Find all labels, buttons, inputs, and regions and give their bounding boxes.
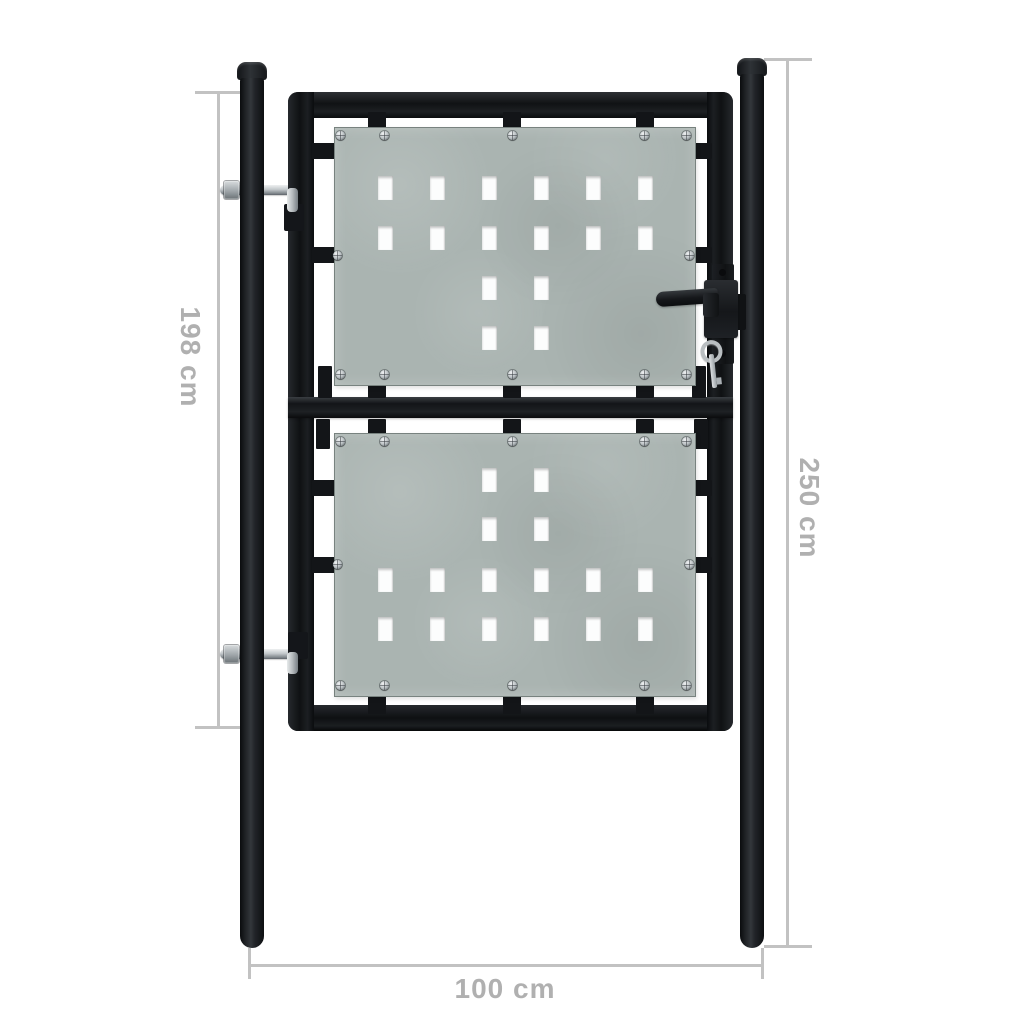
panel-hole	[482, 617, 497, 641]
panel-screw	[508, 681, 517, 690]
panel-hole	[378, 176, 393, 200]
panel-hole	[534, 176, 549, 200]
panel-hole	[638, 617, 653, 641]
panel-screw	[336, 681, 345, 690]
panel-screw	[685, 251, 694, 260]
product-dimension-diagram: 198 cm 250 cm 100 cm	[0, 0, 1024, 1024]
panel-hole	[378, 568, 393, 592]
panel-hole	[586, 176, 601, 200]
panel-hole	[482, 176, 497, 200]
panel-hole	[534, 226, 549, 250]
gate-bottom-panel	[334, 433, 696, 697]
panel-hole	[534, 326, 549, 350]
dim-tick-gate-height-bottom	[195, 726, 240, 729]
hinge-top-nut	[224, 181, 239, 199]
panel-hole	[586, 226, 601, 250]
panel-screw	[682, 437, 691, 446]
dim-label-gate-height: 198 cm	[174, 307, 206, 408]
mounting-clip	[312, 143, 336, 159]
panel-hole	[430, 226, 445, 250]
dim-tick-gate-height-top	[195, 91, 240, 94]
hinge-top-elbow	[287, 188, 298, 212]
hinge-bottom-elbow	[287, 652, 298, 674]
panel-screw	[682, 370, 691, 379]
panel-hole	[482, 276, 497, 300]
mounting-clip	[316, 419, 330, 449]
panel-hole	[638, 176, 653, 200]
panel-hole	[378, 617, 393, 641]
panel-screw	[682, 681, 691, 690]
panel-hole	[482, 226, 497, 250]
panel-hole	[534, 517, 549, 541]
mounting-clip	[318, 366, 332, 398]
gate-top-panel	[334, 127, 696, 386]
panel-hole	[430, 617, 445, 641]
hinge-bottom-nut	[224, 645, 239, 663]
panel-hole	[638, 568, 653, 592]
panel-screw	[508, 437, 517, 446]
panel-screw	[640, 370, 649, 379]
panel-screw	[336, 370, 345, 379]
dim-tick-total-height-top	[764, 58, 812, 61]
dim-tick-total-height-bottom	[764, 945, 812, 948]
dim-tick-width-left	[248, 948, 251, 979]
panel-screw	[333, 251, 342, 260]
key-tooth	[716, 377, 722, 384]
right-post	[740, 74, 764, 948]
dim-label-total-height: 250 cm	[793, 458, 825, 559]
middle-rail	[288, 397, 733, 418]
panel-screw	[682, 131, 691, 140]
panel-hole	[534, 568, 549, 592]
panel-hole	[430, 176, 445, 200]
panel-screw	[508, 131, 517, 140]
panel-screw	[336, 437, 345, 446]
panel-hole	[482, 517, 497, 541]
panel-screw	[380, 370, 389, 379]
dim-tick-width-right	[761, 948, 764, 979]
dim-line-width	[249, 964, 763, 967]
panel-hole	[586, 568, 601, 592]
panel-hole	[534, 468, 549, 492]
dim-line-total-height	[786, 59, 789, 948]
panel-screw	[640, 437, 649, 446]
panel-screw	[685, 560, 694, 569]
panel-hole	[482, 568, 497, 592]
panel-screw	[380, 131, 389, 140]
panel-hole	[638, 226, 653, 250]
latch-bolt-top	[719, 269, 726, 276]
panel-screw	[333, 560, 342, 569]
panel-hole	[534, 276, 549, 300]
panel-hole	[586, 617, 601, 641]
panel-hole	[534, 617, 549, 641]
panel-hole	[482, 468, 497, 492]
panel-hole	[430, 568, 445, 592]
panel-screw	[508, 370, 517, 379]
panel-hole	[378, 226, 393, 250]
panel-screw	[380, 437, 389, 446]
panel-hole	[482, 326, 497, 350]
gate-handle-hub	[703, 293, 719, 317]
panel-screw	[380, 681, 389, 690]
dim-label-width: 100 cm	[455, 973, 556, 1005]
left-post	[240, 78, 264, 948]
panel-screw	[640, 131, 649, 140]
mounting-clip	[694, 419, 708, 449]
mounting-clip	[312, 480, 336, 496]
panel-screw	[336, 131, 345, 140]
panel-screw	[640, 681, 649, 690]
